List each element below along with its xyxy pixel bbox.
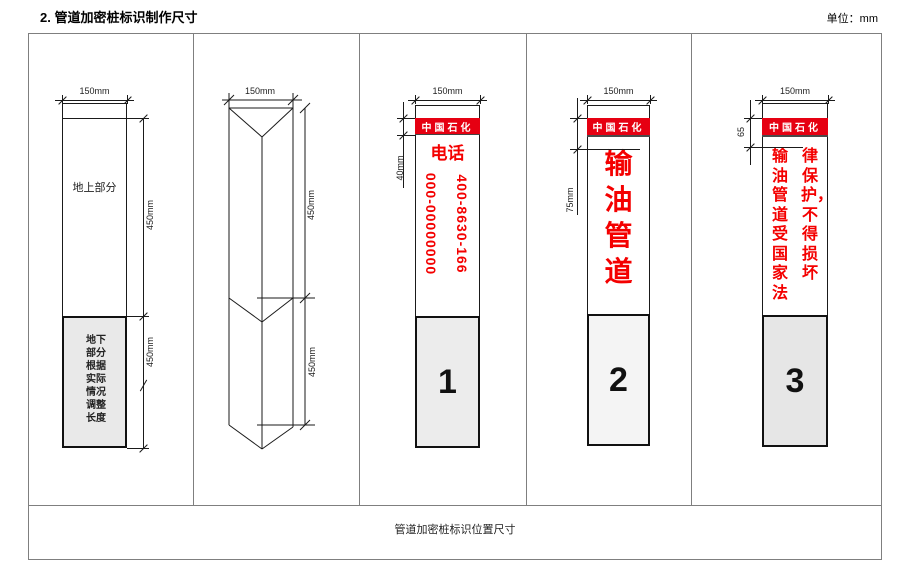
extension-line bbox=[744, 118, 762, 119]
grid-line bbox=[193, 33, 194, 505]
p3-width-dim-label: 150mm bbox=[415, 86, 480, 96]
extension-line bbox=[744, 147, 803, 148]
p4-width-dim-line bbox=[580, 100, 657, 101]
table-caption: 管道加密桩标识位置尺寸 bbox=[28, 521, 882, 537]
p1-underground-note: 地下部分根据实际情况调整长度 bbox=[84, 334, 108, 425]
p5-sinopec-banner: 中国石化 bbox=[762, 118, 828, 137]
p5-index-number: 3 bbox=[786, 362, 805, 401]
p3-index-number: 1 bbox=[438, 363, 457, 402]
grid-line bbox=[28, 505, 882, 506]
p5-text-column-right: 律保护，不得损坏 bbox=[801, 147, 819, 284]
p4-sinopec-banner: 中国石化 bbox=[587, 118, 650, 137]
p3-phone-number-right: 400-8630-166 bbox=[454, 162, 470, 286]
p1-height-dim-line bbox=[143, 118, 144, 448]
p4-width-dim-label: 150mm bbox=[587, 86, 650, 96]
p3-sinopec-banner: 中国石化 bbox=[415, 118, 480, 135]
extension-line bbox=[397, 135, 415, 136]
p5-width-dim-label: 150mm bbox=[762, 86, 828, 96]
p5-width-dim-line bbox=[755, 100, 835, 101]
p1-width-dim-label: 150mm bbox=[62, 86, 127, 96]
extension-line bbox=[127, 316, 149, 317]
unit-label: 单位：mm bbox=[827, 10, 878, 26]
p1-above-ground-label: 地上部分 bbox=[62, 179, 127, 195]
p5-text-column-left: 输油管道受国家法 bbox=[771, 147, 789, 303]
p5-header-dim-line bbox=[750, 100, 751, 165]
extension-line bbox=[127, 118, 149, 119]
p4-index-number: 2 bbox=[609, 361, 628, 400]
triangular-prism-drawing bbox=[195, 85, 325, 465]
p5-underground-section: 3 bbox=[762, 315, 828, 447]
page-title: 2. 管道加密桩标识制作尺寸 bbox=[40, 7, 197, 26]
spec-sheet-page: 2. 管道加密桩标识制作尺寸 单位：mm 管道加密桩标识位置尺寸 150mm 地… bbox=[0, 0, 904, 572]
p3-banner-height-dim-label: 40mm bbox=[395, 146, 405, 190]
p1-cap-line bbox=[62, 118, 127, 119]
p2-underground-dim-label: 450mm bbox=[307, 342, 317, 382]
p1-above-ground-dim-label: 450mm bbox=[145, 195, 155, 235]
extension-line bbox=[127, 448, 149, 449]
p4-header-height-dim-label: 75mm bbox=[565, 178, 575, 222]
p4-vertical-text: 输油管道 bbox=[604, 146, 634, 290]
extension-line bbox=[397, 118, 415, 119]
extension-line bbox=[570, 149, 640, 150]
grid-line bbox=[359, 33, 360, 505]
grid-line bbox=[691, 33, 692, 505]
p3-width-dim-line bbox=[408, 100, 487, 101]
p3-underground-section: 1 bbox=[415, 316, 480, 448]
p4-underground-section: 2 bbox=[587, 314, 650, 446]
p3-phone-number-left: 000-00000000 bbox=[423, 162, 439, 286]
p1-width-dim-line bbox=[55, 100, 134, 101]
grid-line bbox=[526, 33, 527, 505]
p3-phone-heading: 电话 bbox=[415, 139, 480, 164]
p5-header-height-dim-label: 65 bbox=[736, 117, 746, 147]
p1-underground-dim-label: 450mm bbox=[145, 332, 155, 372]
p2-above-ground-dim-label: 450mm bbox=[306, 185, 316, 225]
